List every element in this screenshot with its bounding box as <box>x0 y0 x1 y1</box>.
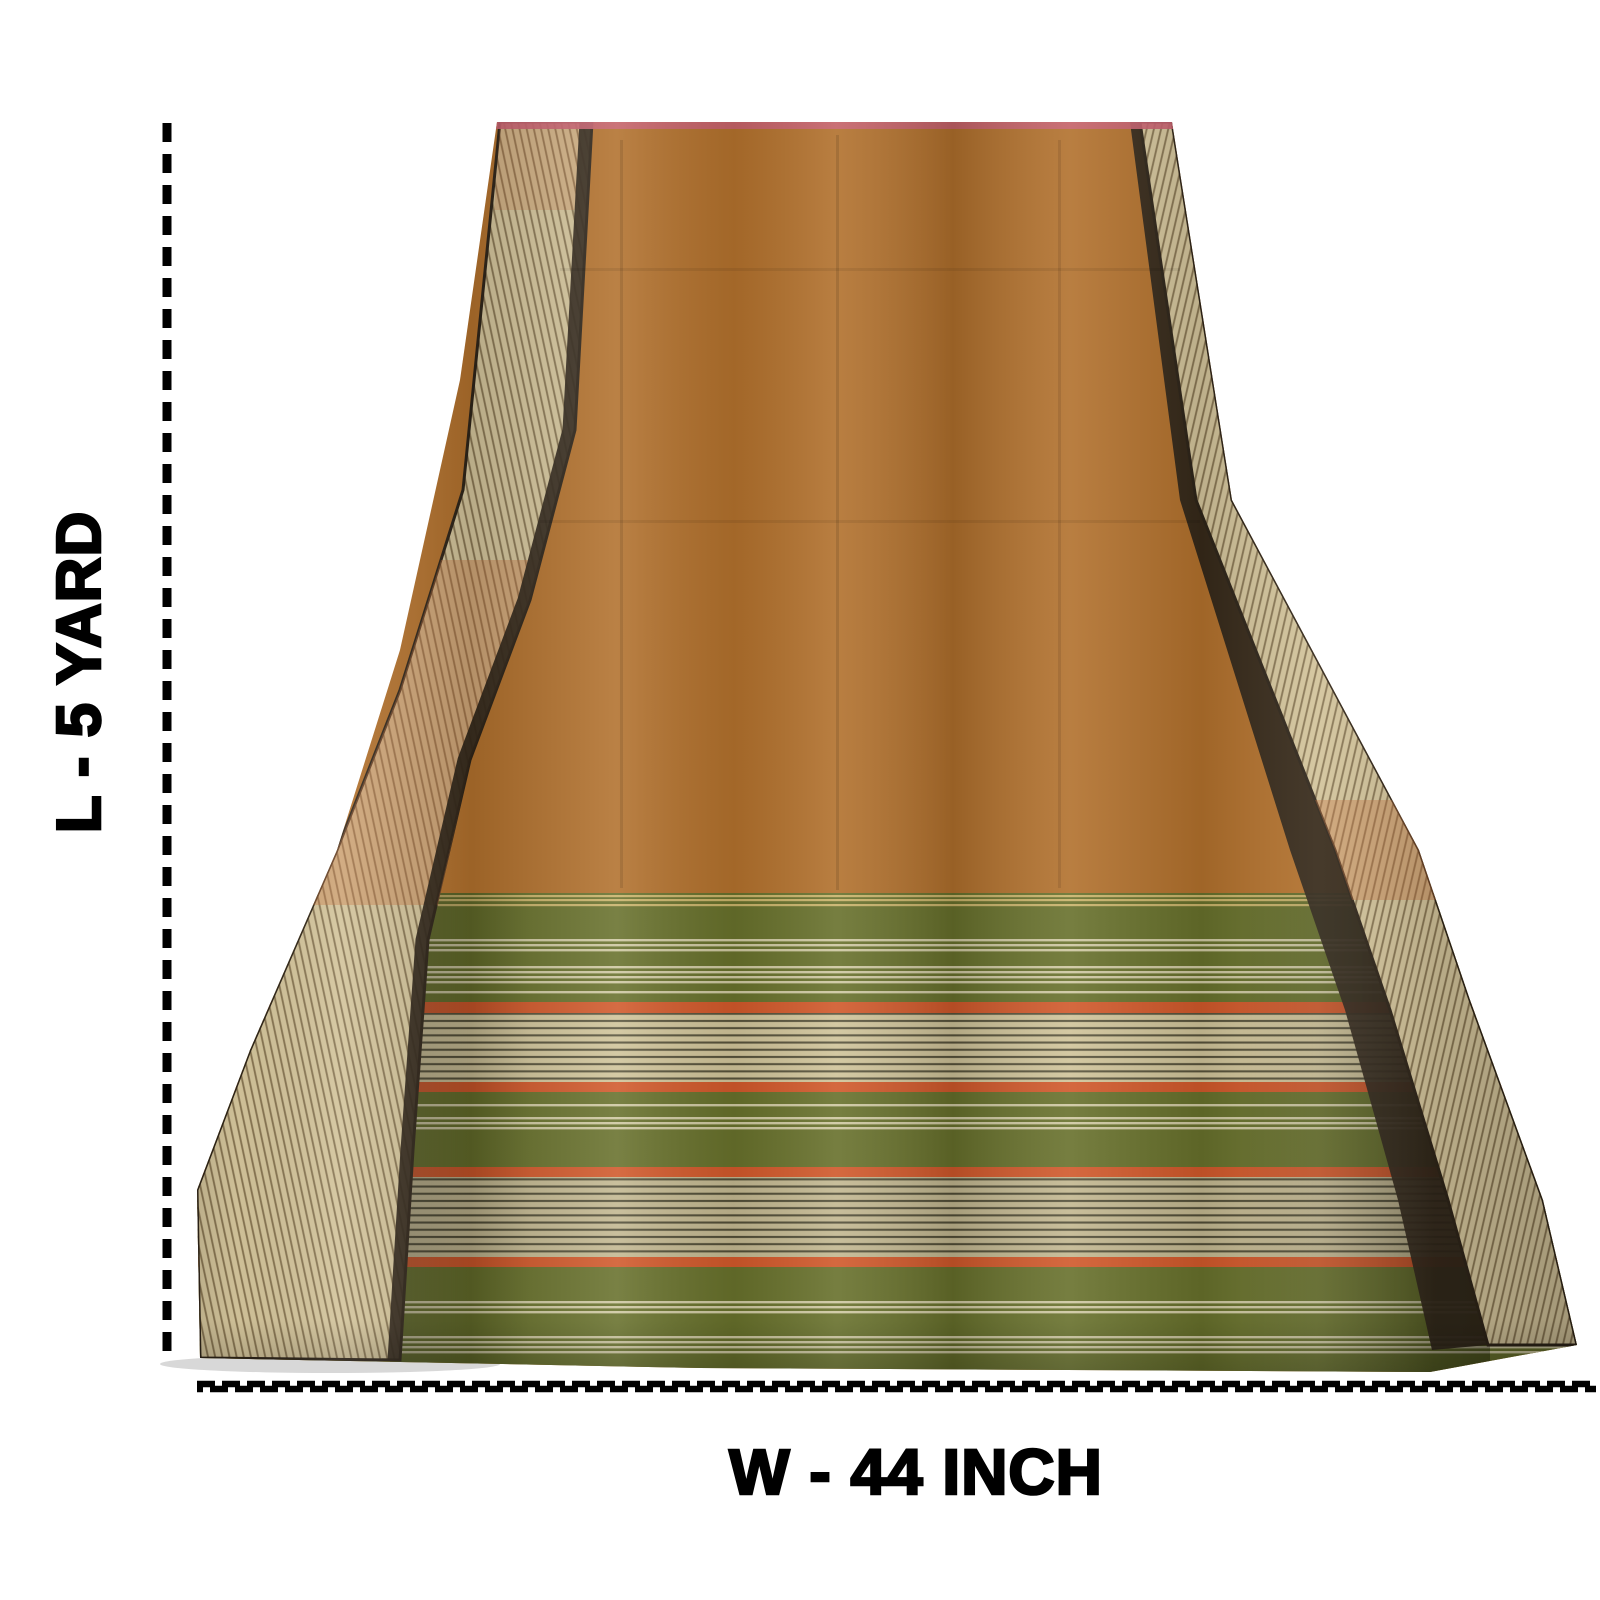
saree-photo <box>150 110 1600 1382</box>
saree-measurement-figure: L - 5 YARD W - 44 INCH <box>0 0 1600 1600</box>
width-dashed-line <box>197 1384 1596 1389</box>
fold-crease <box>620 140 623 888</box>
width-label: W - 44 INCH <box>729 1436 1103 1508</box>
product-photo-canvas: L - 5 YARD W - 44 INCH <box>0 0 1600 1600</box>
fabric-sheen <box>150 110 1600 1382</box>
fold-crease-horizontal <box>540 520 1200 523</box>
fold-crease <box>836 135 839 890</box>
length-label: L - 5 YARD <box>45 511 114 833</box>
fold-crease-horizontal <box>560 268 1180 271</box>
fold-crease <box>1058 140 1061 888</box>
